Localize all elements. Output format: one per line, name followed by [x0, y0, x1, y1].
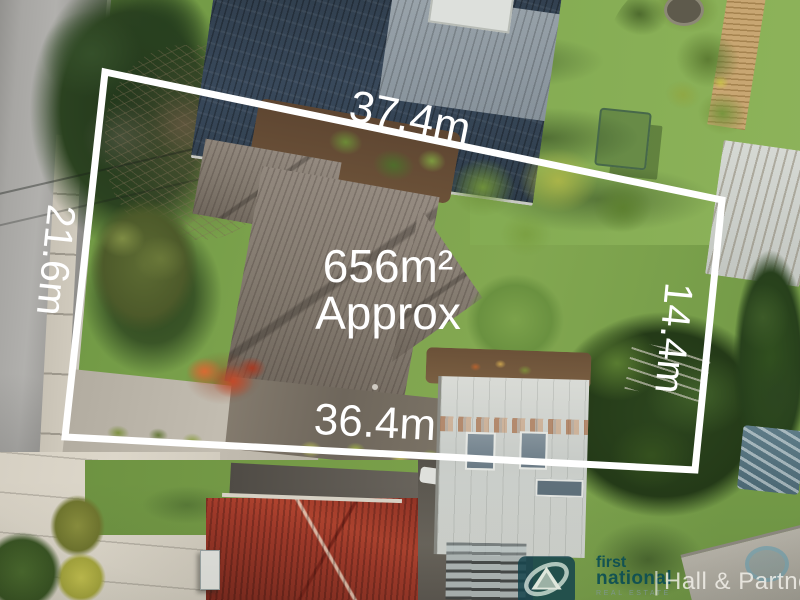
office-name: Hall & Partners: [664, 568, 800, 596]
brand-wordmark: first national REAL ESTATE: [596, 555, 672, 597]
brand-subtitle: REAL ESTATE: [596, 590, 672, 597]
logo-divider: |: [653, 566, 660, 597]
land-area-label: 656m² Approx: [315, 243, 461, 337]
boundary-length-bottom: 36.4m: [313, 395, 438, 451]
land-area-qualifier: Approx: [315, 290, 461, 337]
aerial-listing-photo: 37.4m 14.4m 36.4m 21.6m 656m² Approx fir…: [0, 0, 800, 600]
brand-word-national: national: [596, 569, 672, 588]
land-area-value: 656m²: [315, 243, 461, 290]
first-national-triangle-icon: [518, 556, 575, 600]
agency-logo: first national REAL ESTATE | Hall & Part…: [516, 554, 800, 600]
